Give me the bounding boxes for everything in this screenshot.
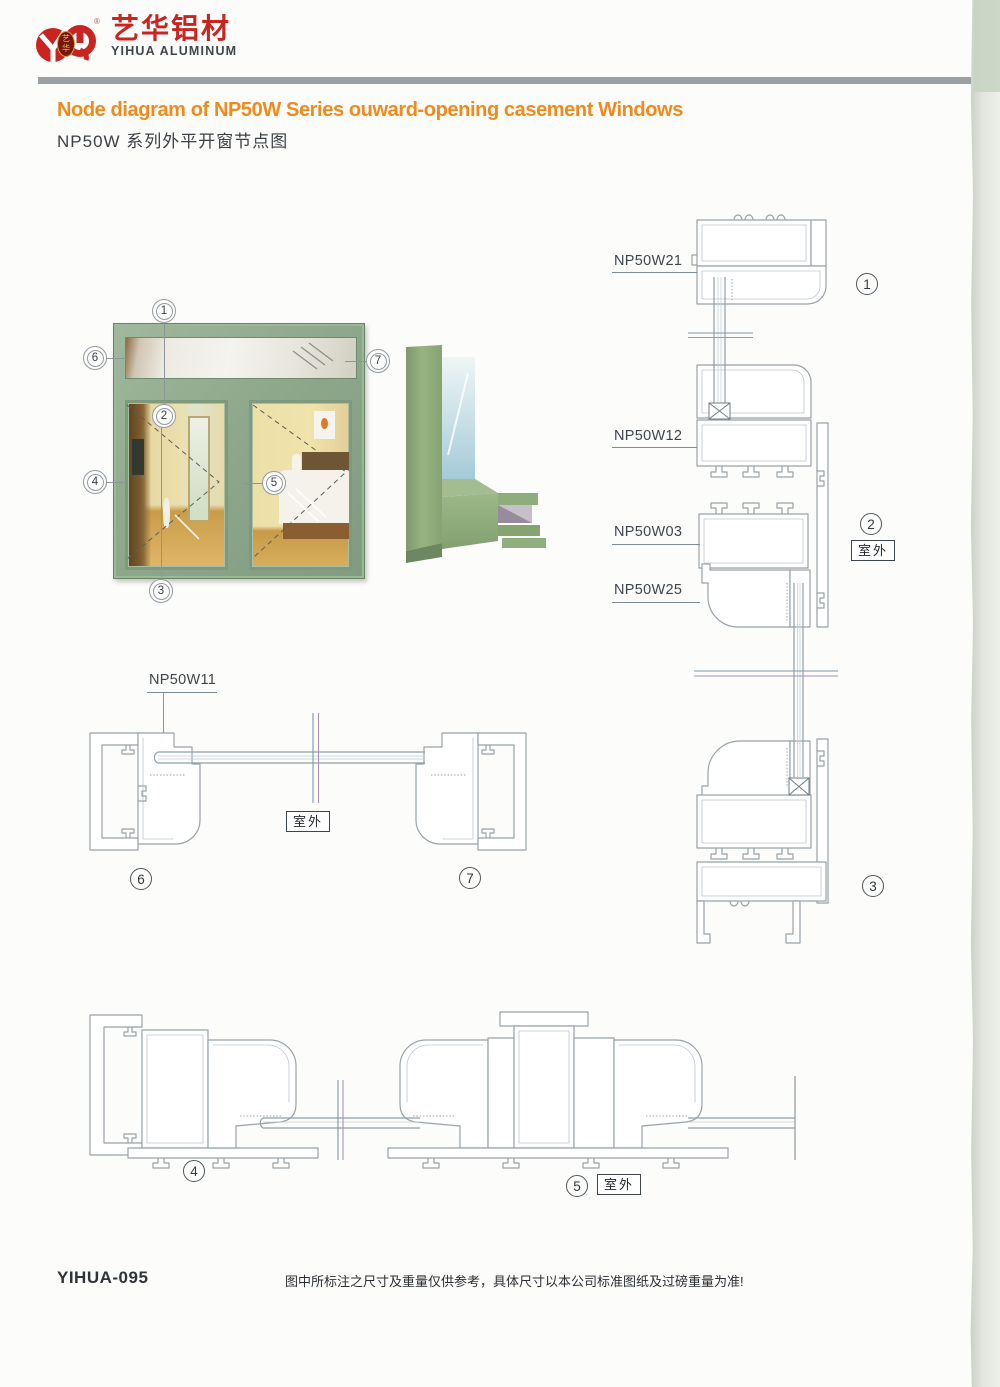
transom-glass	[125, 337, 357, 379]
tv-cabinet	[132, 439, 145, 475]
section-callout-6: 6	[130, 868, 152, 890]
corner-profile-strip-1	[498, 493, 538, 505]
window-callout-5: 5	[262, 471, 286, 495]
window-illustration	[113, 323, 365, 579]
vertical-node-section	[598, 203, 898, 953]
section-callout-1: 1	[856, 273, 878, 295]
footer-disclaimer: 图中所标注之尺寸及重量仅供参考，具体尺寸以本公司标准图纸及过磅重量为准!	[285, 1271, 744, 1290]
window-callout-1: 1	[152, 299, 176, 323]
brand-logo: 艺 华 ® 艺华铝材 YIHUA ALUMINUM	[33, 14, 237, 72]
corner-vertical-leg	[406, 345, 442, 551]
window-callout-2: 2	[152, 404, 176, 428]
header-divider	[38, 77, 971, 84]
brand-name-cn: 艺华铝材	[111, 14, 237, 44]
corner-profile-strip-2	[498, 525, 540, 536]
leader-line-callout1	[164, 322, 165, 405]
horizontal-jamb-section	[88, 668, 528, 868]
section-callout-5: 5	[566, 1175, 588, 1197]
logo-mark-char-bottom: 华	[62, 43, 70, 53]
leader-line-callout6	[106, 358, 126, 359]
label-np50w03: NP50W03	[614, 524, 682, 540]
leader-line-callout7	[345, 361, 367, 362]
registered-trademark: ®	[94, 17, 100, 26]
corner-glass	[442, 357, 475, 479]
label-line-np50w21	[612, 272, 697, 273]
outdoor-label-right: 室外	[851, 540, 895, 561]
section-callout-7: 7	[459, 867, 481, 889]
page-title-en: Node diagram of NP50W Series ouward-open…	[57, 99, 683, 122]
leader-line-callout2-3	[161, 428, 162, 580]
bed-sheets	[279, 470, 349, 524]
brand-name-en: YIHUA ALUMINUM	[111, 44, 237, 59]
window-callout-6: 6	[83, 346, 107, 370]
page-torn-edge-top	[974, 0, 1000, 92]
floor-vase	[163, 498, 170, 528]
label-np50w11: NP50W11	[149, 672, 216, 688]
window-callout-3: 3	[149, 579, 173, 603]
outdoor-label-middle: 室外	[286, 811, 330, 832]
label-line-np50w11	[147, 692, 217, 693]
page-title-cn: NP50W 系列外平开窗节点图	[57, 127, 288, 152]
interior-window	[188, 416, 209, 522]
section-callout-4: 4	[183, 1160, 205, 1182]
section-callout-2: 2	[860, 513, 882, 535]
section-callout-3: 3	[862, 875, 884, 897]
catalog-page: 艺 华 ® 艺华铝材 YIHUA ALUMINUM Node diagram o…	[0, 0, 1000, 1387]
wall-art-dot	[321, 418, 328, 429]
bed-base	[283, 523, 349, 539]
logo-mark-char-top: 艺	[62, 34, 70, 43]
leader-line-callout5	[243, 483, 263, 484]
leader-line-callout4	[106, 482, 126, 483]
corner-horizontal-leg	[442, 493, 498, 549]
corner-profile-strip-3	[502, 538, 546, 548]
label-np50w12: NP50W12	[614, 428, 682, 444]
bedside-lamp	[292, 454, 302, 472]
leader-line-np50w11	[163, 692, 164, 733]
page-code: YIHUA-095	[57, 1268, 148, 1288]
label-line-np50w25	[612, 602, 700, 603]
window-callout-7: 7	[366, 349, 390, 373]
label-np50w21: NP50W21	[614, 253, 682, 269]
window-callout-4: 4	[83, 470, 107, 494]
left-casement-photo	[125, 400, 228, 570]
outdoor-label-bottom: 室外	[597, 1174, 641, 1195]
page-torn-edge	[970, 0, 1000, 1387]
label-np50w25: NP50W25	[614, 582, 682, 598]
break-lines	[313, 713, 319, 803]
label-line-np50w03	[612, 544, 700, 545]
corner-section-3d	[398, 345, 573, 590]
brand-logo-mark-icon: 艺 华 ®	[33, 14, 103, 72]
label-line-np50w12	[612, 447, 697, 448]
